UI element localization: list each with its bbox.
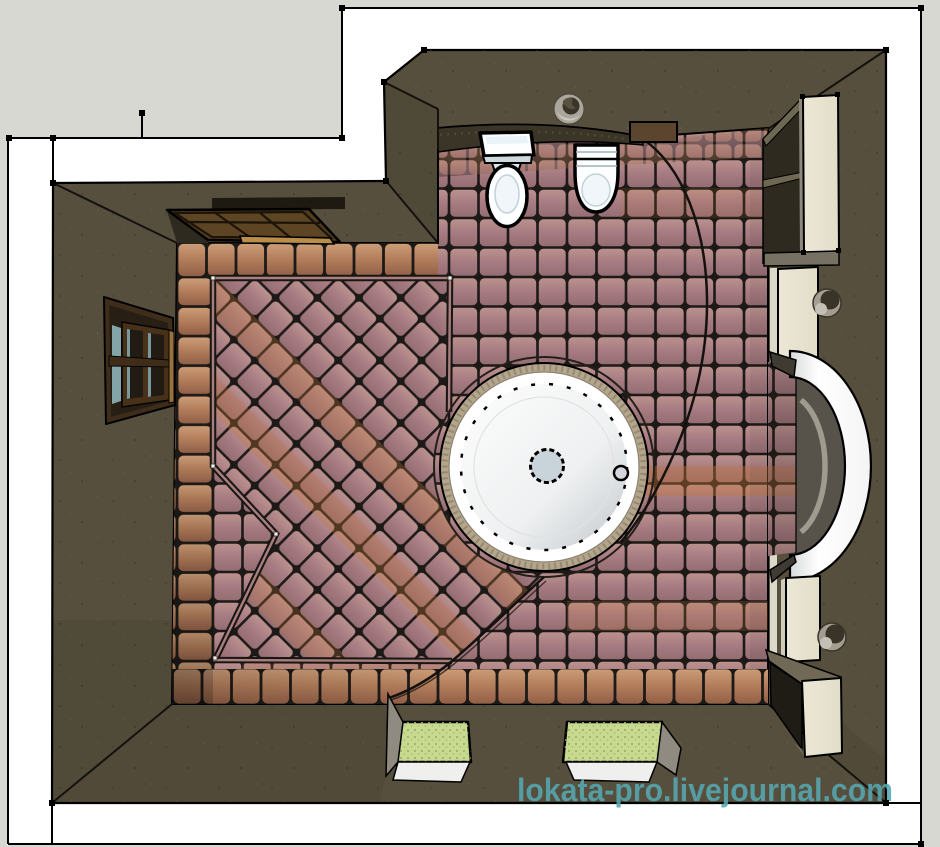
svg-text:lokata-pro.livejournal.com: lokata-pro.livejournal.com [517,772,893,808]
